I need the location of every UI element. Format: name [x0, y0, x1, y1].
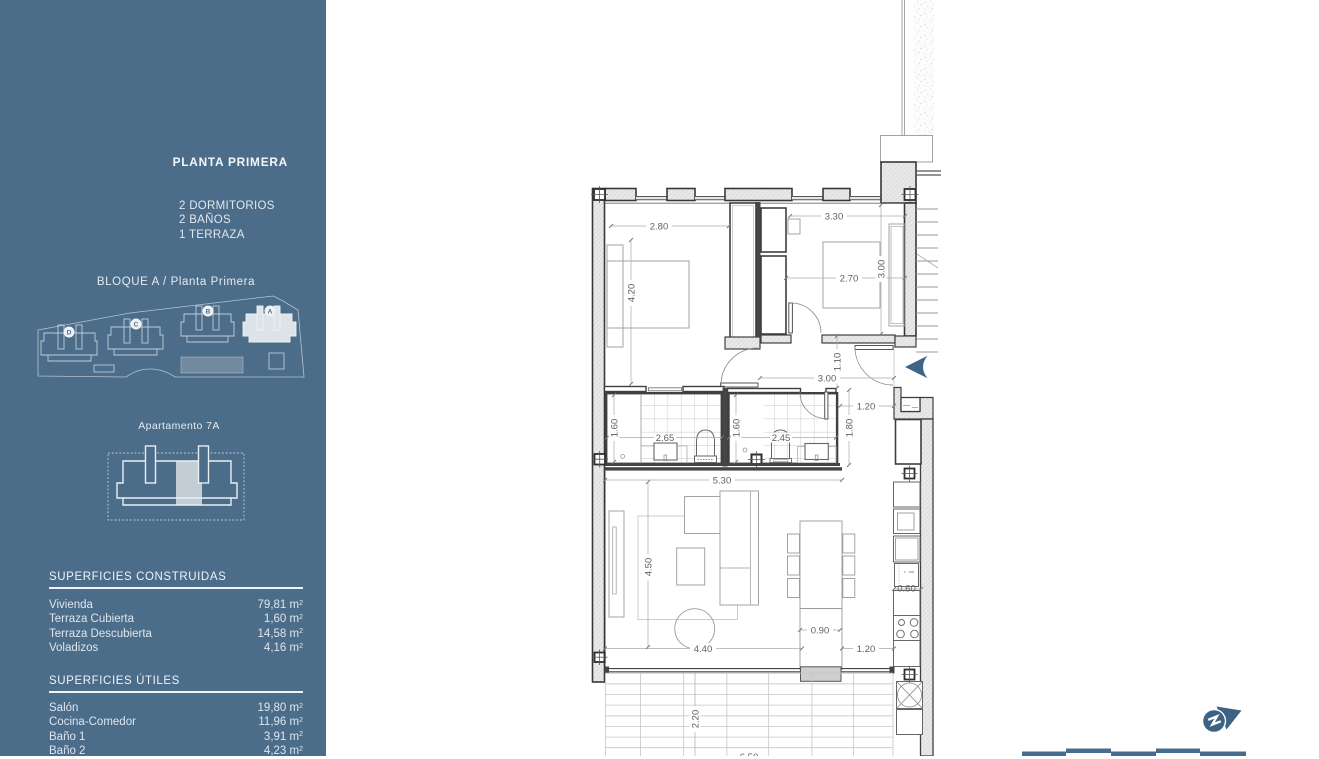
svg-text:2.70: 2.70 [840, 274, 859, 285]
svg-text:D: D [67, 330, 72, 337]
svg-text:2.80: 2.80 [650, 222, 669, 233]
svg-text:A: A [268, 309, 273, 316]
svg-text:3.00: 3.00 [818, 374, 837, 385]
svg-text:1.80: 1.80 [845, 419, 856, 438]
svg-text:4.40: 4.40 [694, 644, 713, 655]
svg-text:4.20: 4.20 [627, 284, 638, 303]
svg-text:1.60: 1.60 [610, 419, 621, 438]
svg-text:2.45: 2.45 [772, 433, 791, 444]
svg-text:6.50: 6.50 [740, 752, 759, 756]
svg-text:C: C [134, 322, 139, 329]
svg-text:0.60: 0.60 [897, 584, 916, 595]
svg-text:3.30: 3.30 [825, 212, 844, 223]
svg-text:1.10: 1.10 [833, 353, 844, 372]
svg-text:0.90: 0.90 [811, 626, 830, 637]
svg-text:5.30: 5.30 [713, 476, 732, 487]
svg-text:1.20: 1.20 [857, 644, 876, 655]
svg-text:2.20: 2.20 [691, 710, 702, 729]
svg-text:1.60: 1.60 [732, 419, 743, 438]
svg-text:3.00: 3.00 [877, 260, 888, 279]
svg-text:4.50: 4.50 [644, 558, 655, 577]
svg-text:B: B [206, 309, 211, 316]
svg-text:1.20: 1.20 [857, 402, 876, 413]
svg-text:2.65: 2.65 [656, 433, 675, 444]
